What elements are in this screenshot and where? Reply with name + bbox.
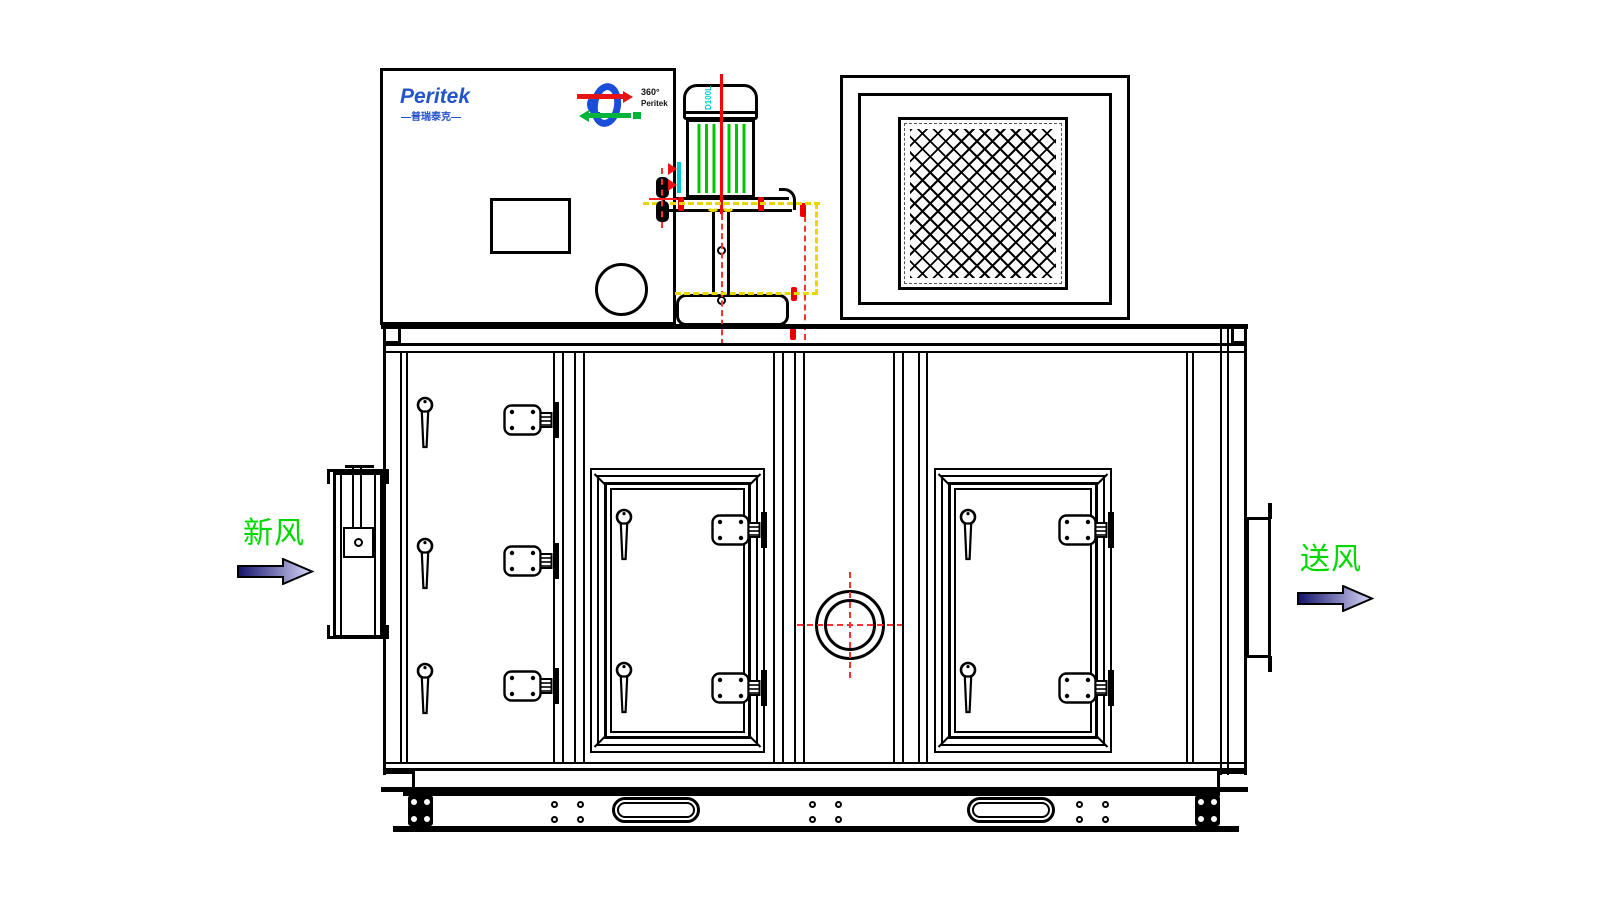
sensor-pointer [668, 179, 677, 191]
door-handle-icon[interactable] [416, 396, 434, 450]
red-arrow-icon [575, 91, 635, 105]
door-handle-icon[interactable] [959, 508, 977, 562]
mount-centerline [804, 206, 806, 340]
damper-actuator-shaft-hole [354, 538, 363, 547]
sensor-pointer [668, 163, 677, 175]
base-end-bracket [408, 795, 433, 826]
base-bolt-hole [1102, 801, 1109, 808]
highlight-line [815, 203, 818, 295]
rotor-logo-brand-text: Peritek [641, 99, 668, 108]
bolt-mark [800, 203, 806, 217]
door-handle-icon[interactable] [615, 508, 633, 562]
base-bolt-hole [577, 816, 584, 823]
cabinet-frame-line [562, 353, 564, 763]
door-latch-icon[interactable] [503, 402, 561, 438]
peritek-logo-subtitle: —普瑞泰克— [401, 108, 461, 123]
filter-mesh [910, 129, 1056, 278]
base-bolt-hole [1102, 816, 1109, 823]
door-handle-icon[interactable] [615, 661, 633, 715]
dehumidifier-unit-drawing: Peritek —普瑞泰克— 360° Peritek D100L [0, 0, 1613, 897]
door-latch-icon[interactable] [503, 543, 561, 579]
cabinet-frame-line [574, 353, 576, 763]
cabinet-frame-line [583, 353, 585, 763]
green-arrow-icon [579, 110, 641, 124]
corner-step [385, 771, 415, 787]
cabinet-frame-line [893, 353, 895, 763]
motor-centerline [720, 74, 723, 214]
outlet-arrow-icon [1297, 585, 1375, 612]
cabinet-frame-line [1220, 329, 1222, 775]
damper-rod [352, 468, 354, 528]
motor-frame-label: D100L [704, 86, 713, 110]
motor-flange-upper [675, 197, 789, 200]
base-rail-top [403, 792, 1220, 796]
door-latch-icon[interactable] [1058, 512, 1116, 548]
highlight-line [675, 292, 818, 295]
door-latch-icon[interactable] [503, 668, 561, 704]
door-latch-icon[interactable] [711, 670, 769, 706]
cabinet-frame-line [918, 353, 920, 763]
inlet-flange-bottom [327, 636, 389, 639]
cabinet-frame-line [782, 353, 784, 763]
base-bolt-hole [551, 801, 558, 808]
cabinet-frame-line [1186, 353, 1188, 763]
base-bolt-hole [551, 816, 558, 823]
outlet-air-label: 送风 [1300, 534, 1362, 578]
sensor-icon [677, 162, 681, 193]
base-bolt-hole [809, 801, 816, 808]
cabinet-frame-line [773, 353, 775, 763]
door-handle-icon[interactable] [416, 537, 434, 591]
cabinet-frame-line [1192, 353, 1194, 763]
rotor-logo: 360° Peritek [575, 82, 675, 132]
door-handle-icon[interactable] [959, 661, 977, 715]
cabinet-frame-line [383, 329, 386, 775]
base-bolt-hole [1076, 801, 1083, 808]
cabinet-frame-line [1244, 329, 1247, 775]
base-rail-bottom [393, 826, 1239, 832]
cabinet-frame-line [794, 353, 796, 763]
base-bolt-hole [835, 801, 842, 808]
cabinet-frame-line [902, 353, 904, 763]
spring-mark [721, 200, 735, 212]
cabinet-frame-line [1227, 329, 1229, 775]
base-bolt-hole [1076, 816, 1083, 823]
damper-rod [360, 468, 362, 528]
door-handle-icon[interactable] [416, 662, 434, 716]
outlet-duct [1246, 517, 1271, 658]
peritek-logo: Peritek [400, 85, 470, 109]
door-latch-icon[interactable] [1058, 670, 1116, 706]
rotor-logo-angle-text: 360° [641, 87, 660, 97]
motor-mount-bracket [676, 294, 789, 326]
cabinet-frame-line [400, 353, 402, 763]
cabinet-frame-line [926, 353, 928, 763]
base-end-bracket [1195, 795, 1220, 826]
door-latch-icon[interactable] [711, 512, 769, 548]
cabinet-top-flange [381, 324, 1248, 329]
damper-handle-bar[interactable] [345, 465, 374, 468]
porthole-centerline [849, 572, 851, 678]
base-bolt-hole [577, 801, 584, 808]
cabinet-frame-line [406, 353, 408, 763]
corner-step [385, 329, 401, 344]
control-box-window [490, 198, 571, 254]
inlet-air-label: 新风 [243, 508, 305, 552]
spring-mark [706, 200, 720, 212]
cabinet-frame-line [803, 353, 805, 763]
motor-flange-hook [779, 188, 796, 210]
control-box-knockout-circle [595, 263, 648, 316]
base-bolt-hole [809, 816, 816, 823]
inlet-arrow-icon [237, 558, 315, 585]
base-bolt-hole [835, 816, 842, 823]
